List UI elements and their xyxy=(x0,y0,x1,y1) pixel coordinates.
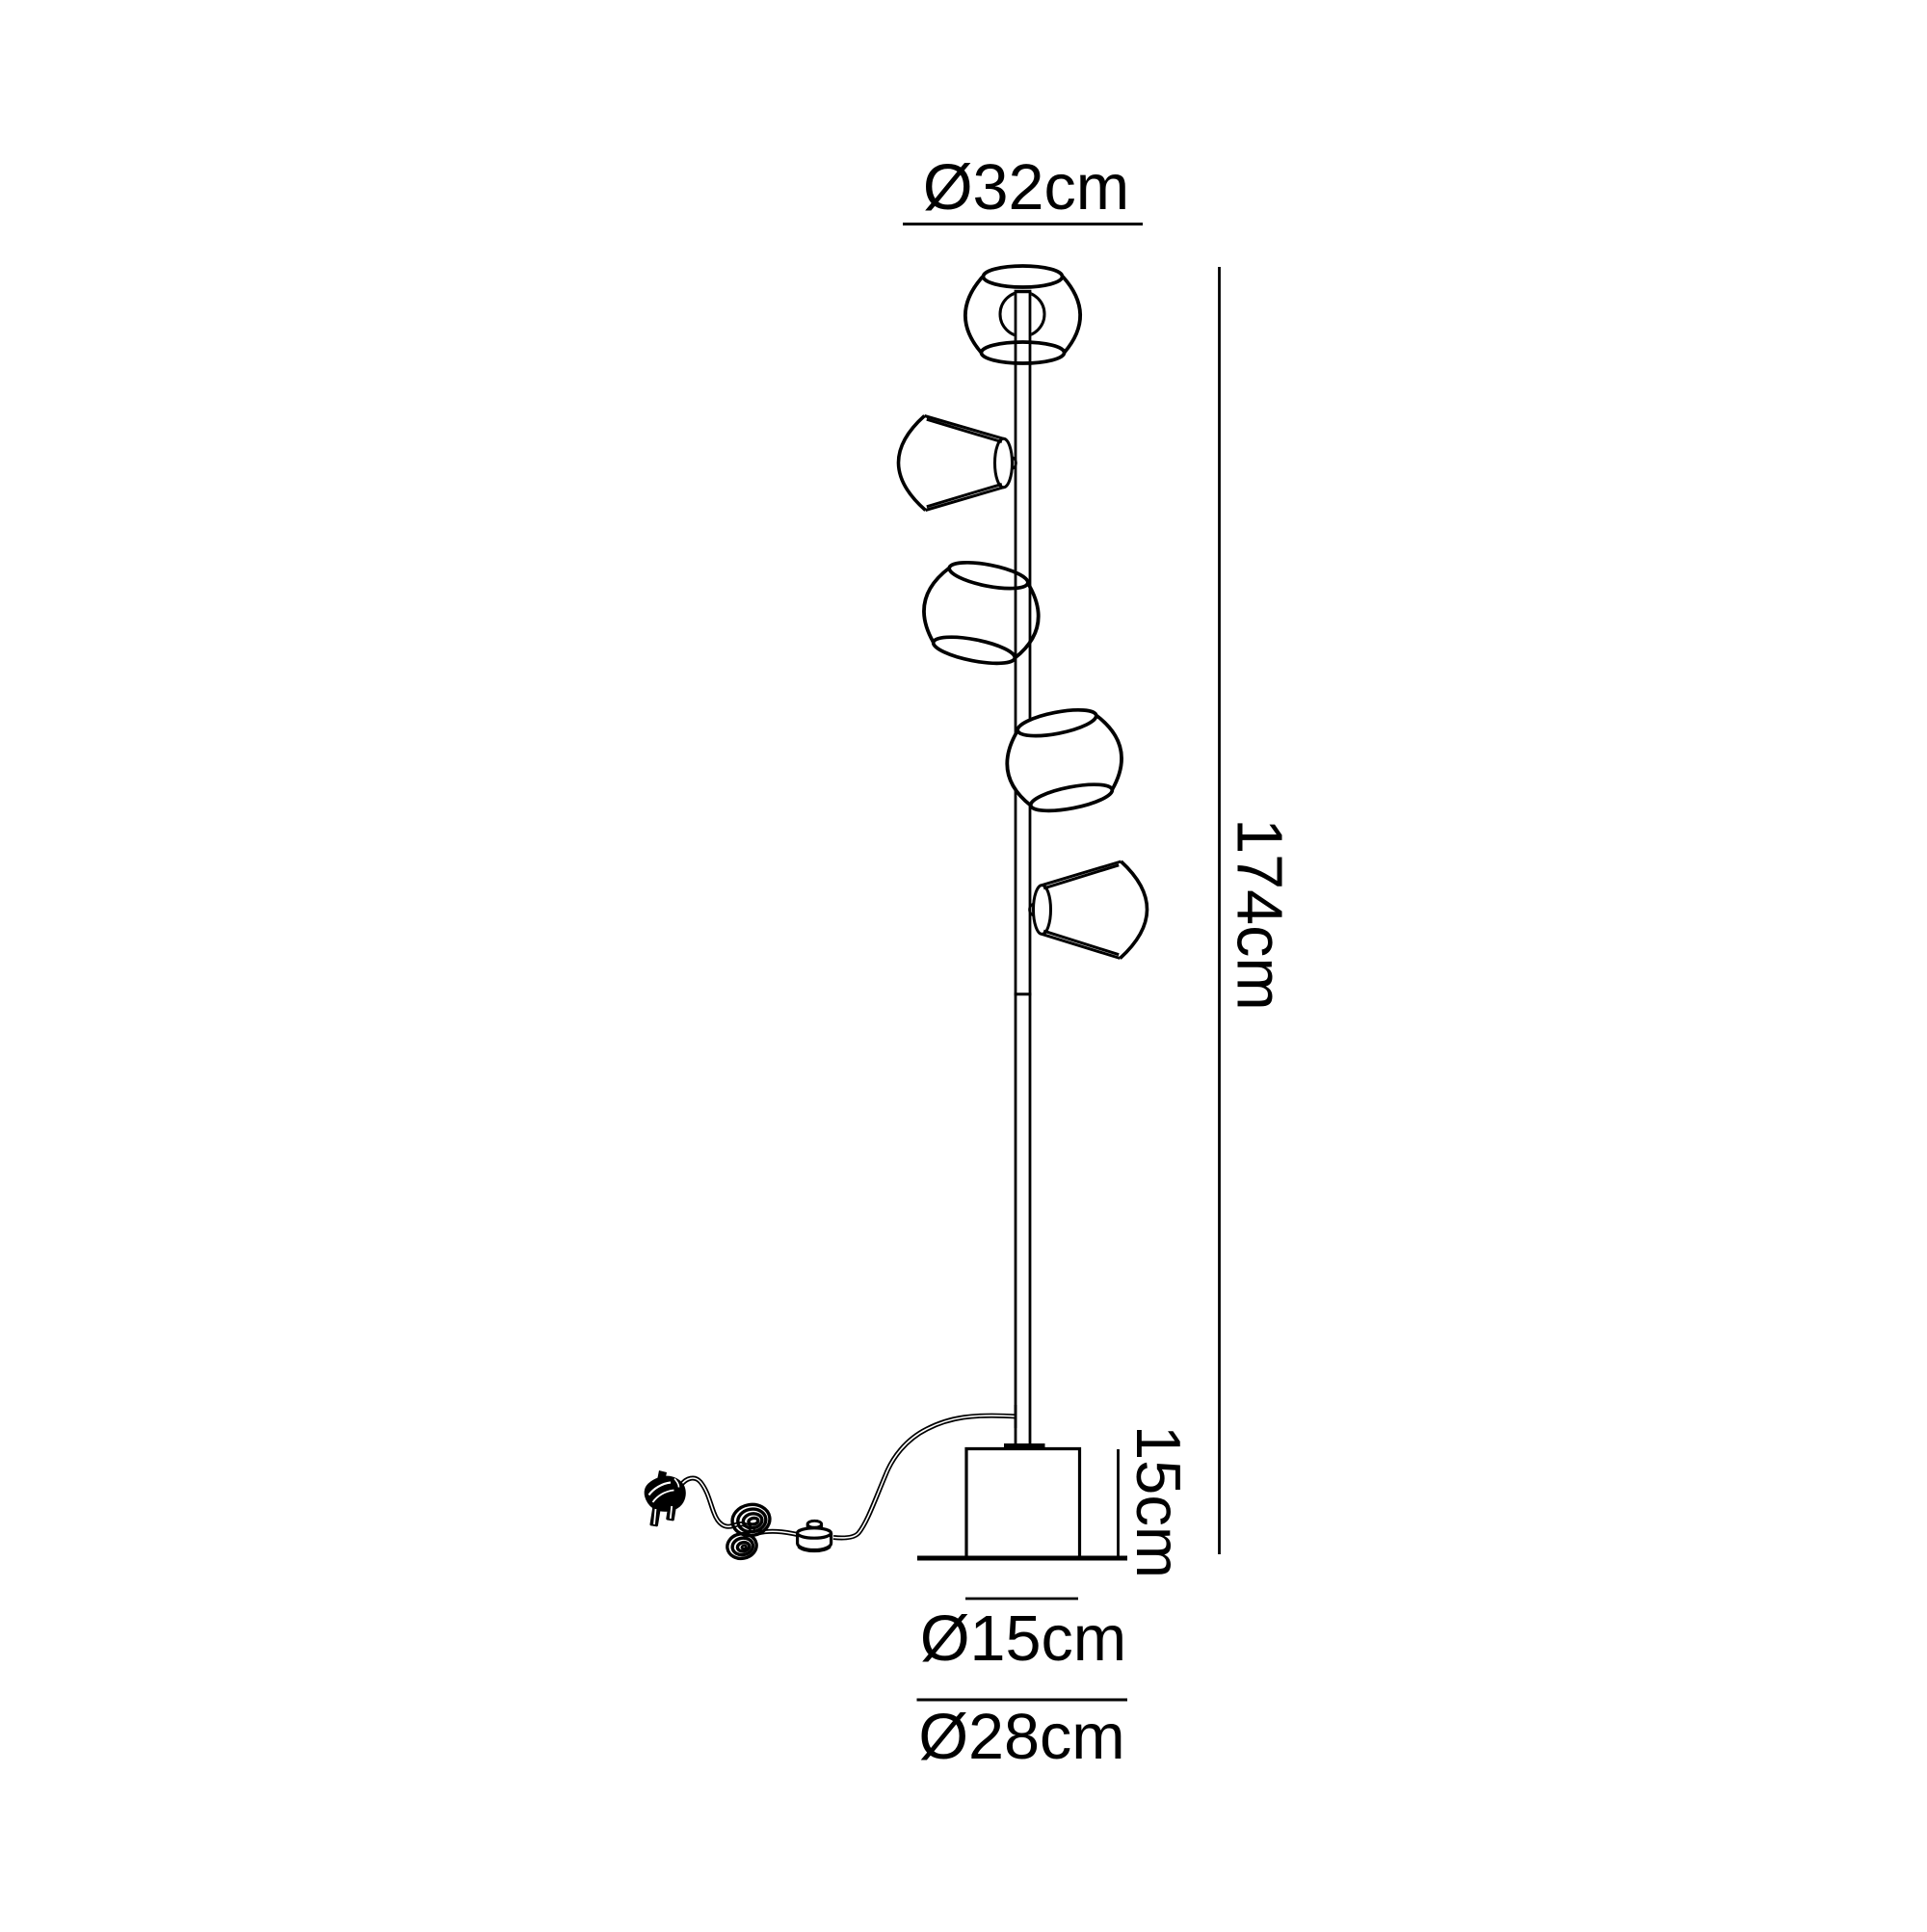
svg-text:15cm: 15cm xyxy=(1123,1425,1194,1578)
svg-text:174cm: 174cm xyxy=(1224,818,1295,1011)
svg-text:Ø32cm: Ø32cm xyxy=(923,152,1129,224)
svg-text:Ø28cm: Ø28cm xyxy=(918,1702,1124,1773)
svg-text:Ø15cm: Ø15cm xyxy=(920,1603,1126,1675)
